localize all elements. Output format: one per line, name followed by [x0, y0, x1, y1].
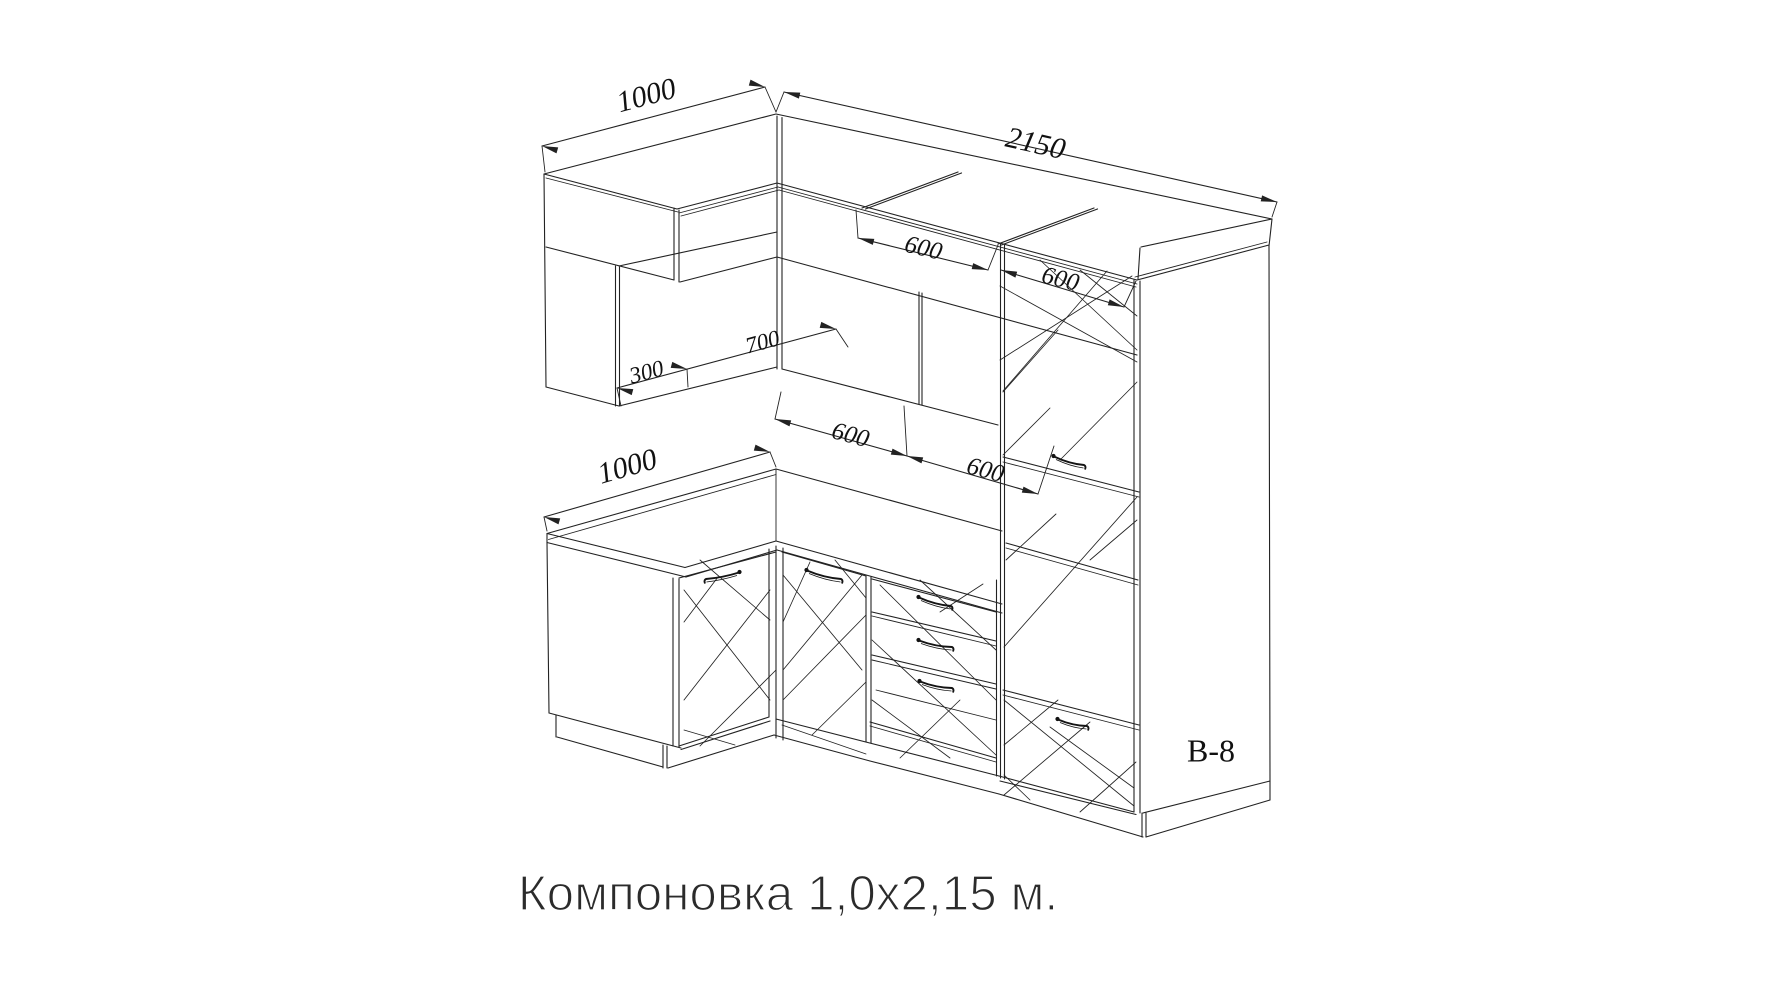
svg-text:В-8: В-8 — [1187, 732, 1235, 768]
